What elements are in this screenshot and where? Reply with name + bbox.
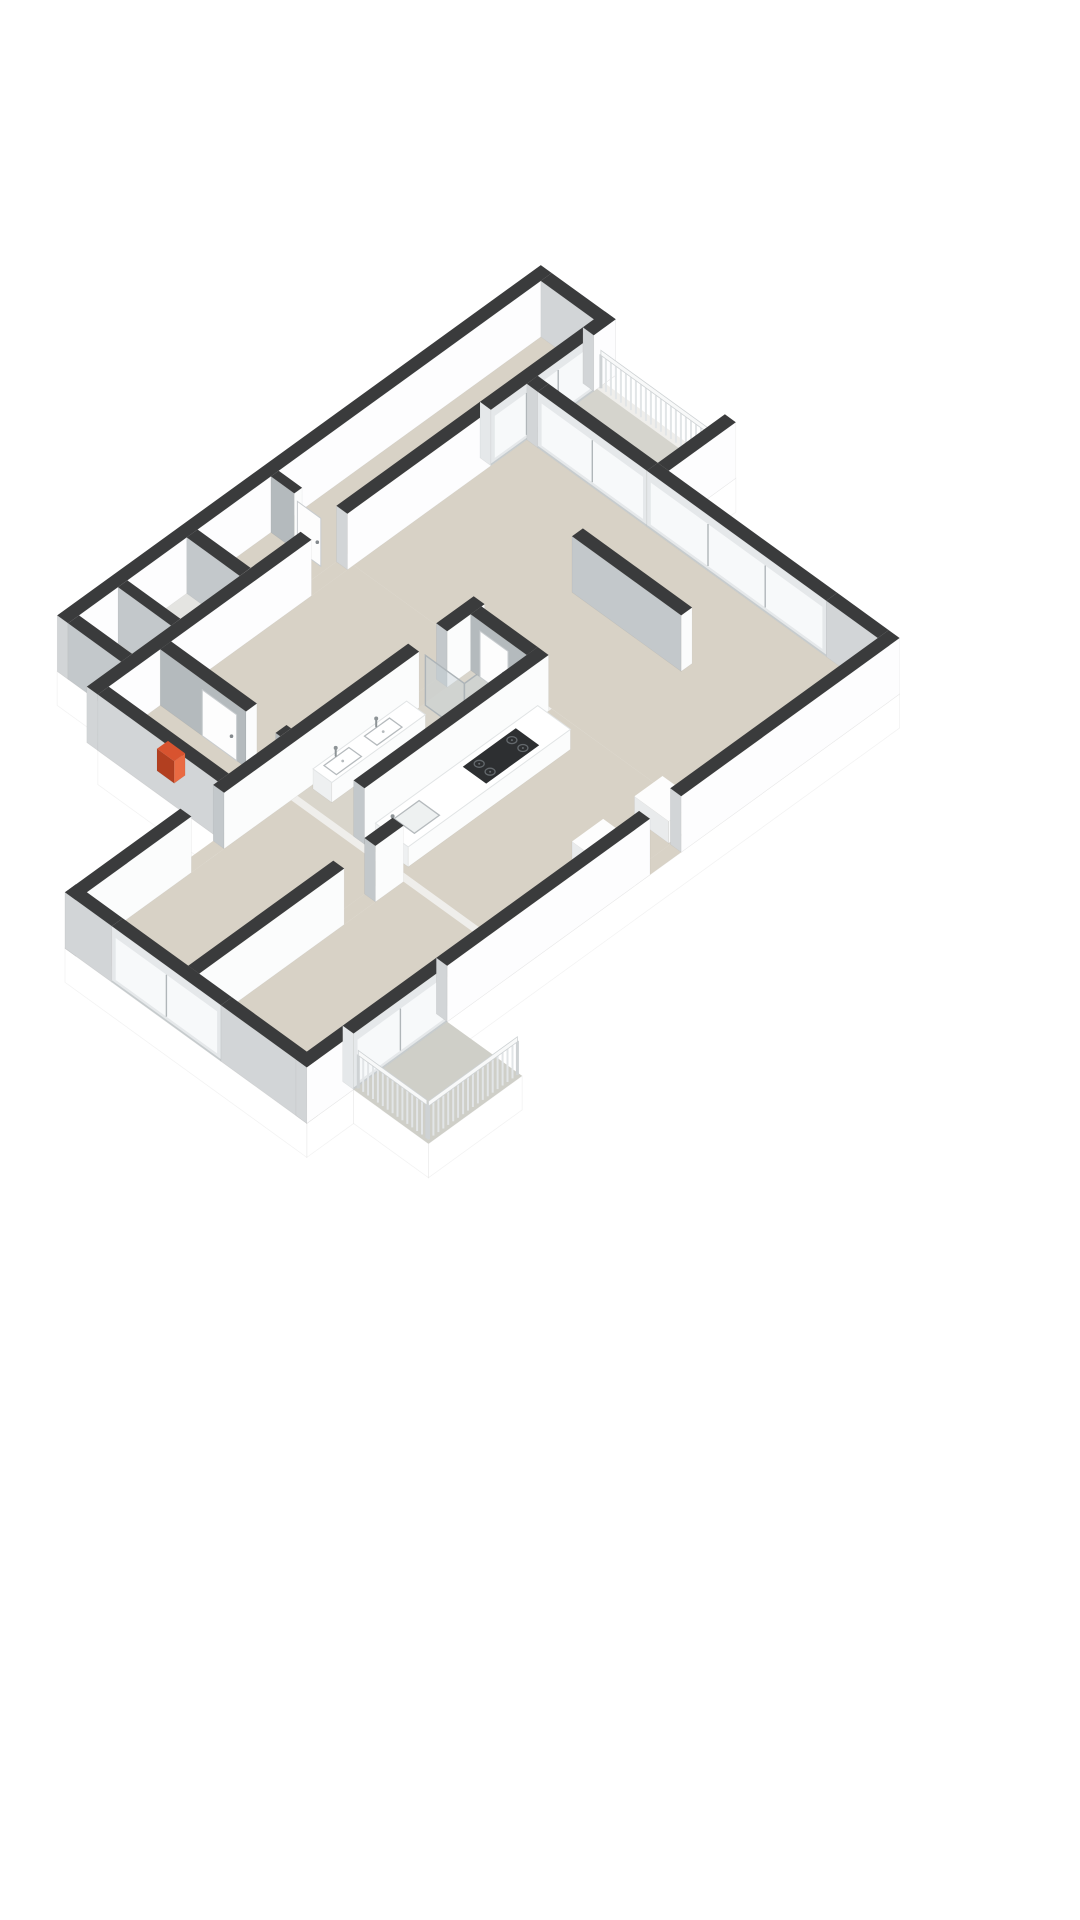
floorplan-page bbox=[0, 0, 1080, 1920]
floorplan-3d-render bbox=[0, 0, 1080, 1920]
